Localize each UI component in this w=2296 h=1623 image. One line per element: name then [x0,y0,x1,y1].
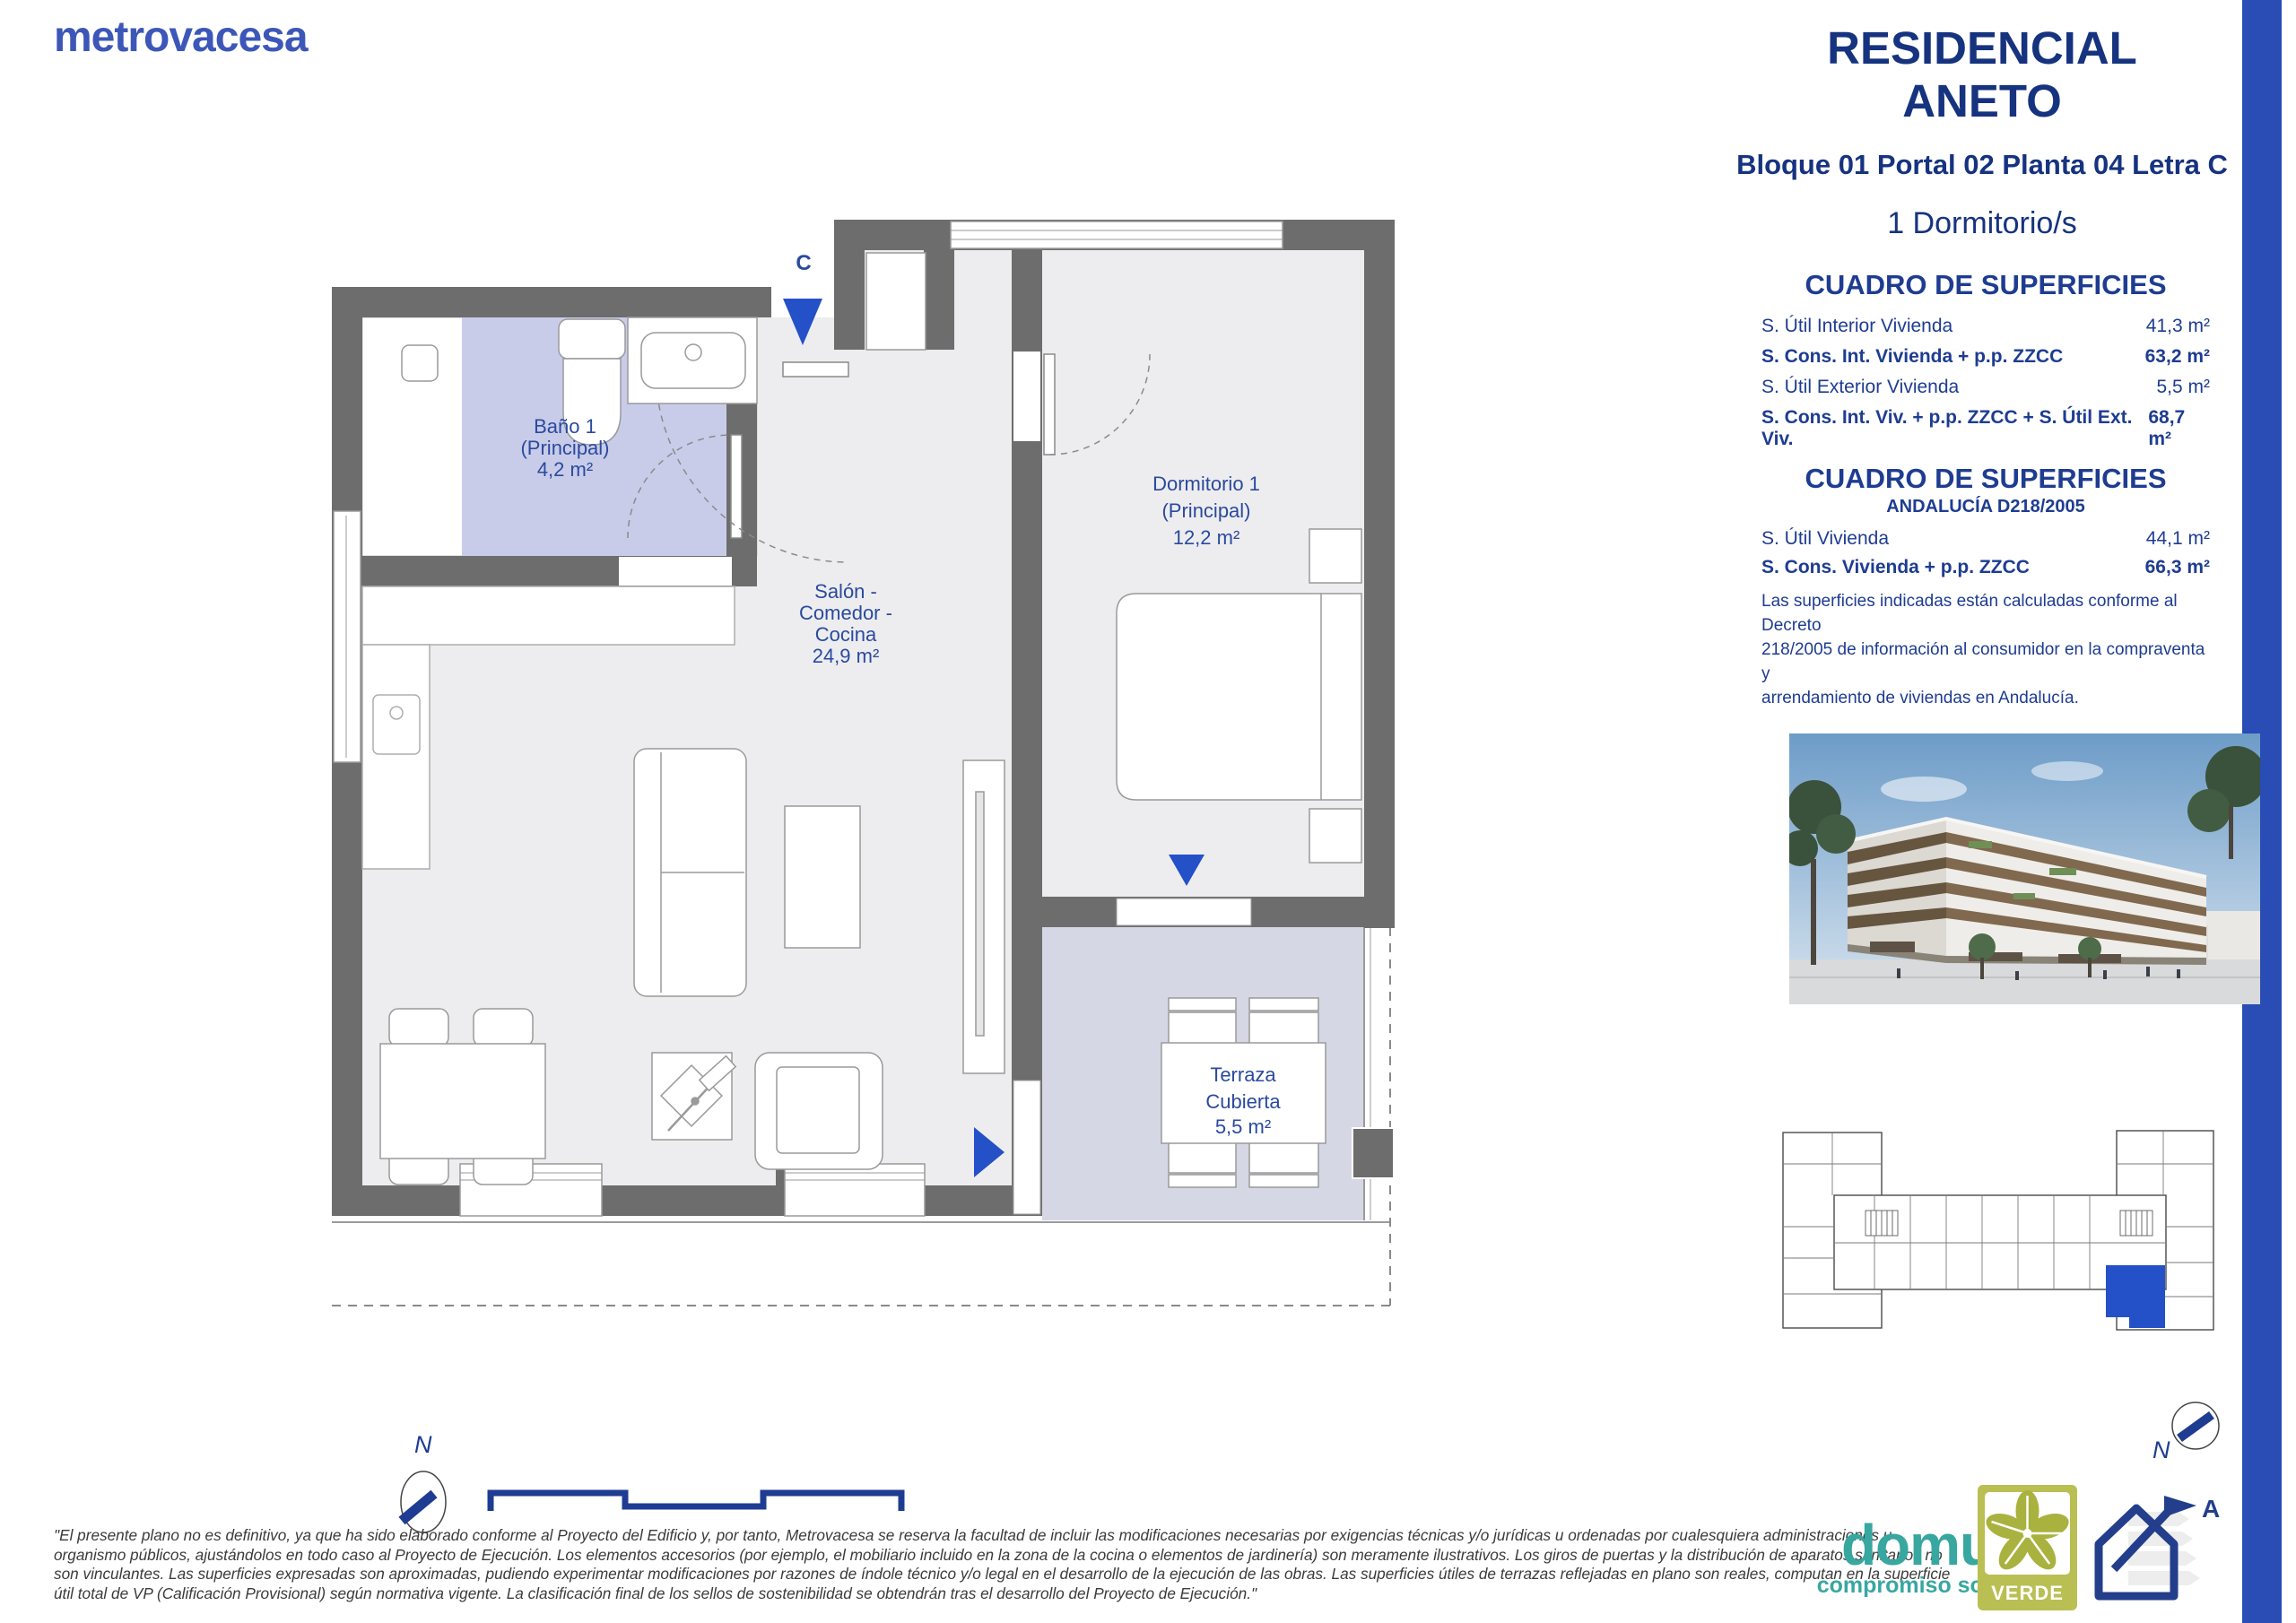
chair [1169,1141,1236,1173]
armchair [755,1053,883,1169]
chair-back [1249,998,1318,1011]
bed [1117,594,1361,800]
compass-needle [402,1494,434,1521]
bath-area: 4,2 m² [537,458,593,481]
chair [1169,1012,1236,1045]
cloud [1881,777,1967,802]
row-value: 63,2 m² [2145,346,2210,368]
tv-unit [963,760,1004,1073]
building-render-image [1789,733,2260,1004]
chair-back [1169,998,1236,1011]
sideboard [785,806,860,948]
compass-needle [2179,1415,2212,1438]
north-label: N [2152,1436,2170,1463]
kitchen-faucet [390,707,403,719]
dining-table [380,1044,545,1159]
bath-label: (Principal) [520,437,609,459]
row-label: S. Útil Exterior Vivienda [1761,377,1959,398]
living-label: Salón - [814,580,877,603]
keyplan [1776,1128,2220,1334]
domum-text-teal: domu [1841,1513,1994,1577]
verde-badge: VERDE [1978,1485,2077,1610]
scale-bar [491,1493,901,1511]
background-building [2204,911,2260,967]
sink-faucet [685,344,701,360]
chair [474,1009,533,1046]
row-label: S. Cons. Int. Viv. + p.p. ZZCC + S. Útil… [1761,407,2148,450]
energy-rating-icon: A [2085,1481,2233,1607]
cloud [2031,761,2103,781]
note-line: 218/2005 de información al consumidor en… [1761,638,2210,686]
decree-note: Las superficies indicadas están calculad… [1761,589,2210,710]
energy-chevron-bars [2128,1512,2200,1585]
page-title-line1: RESIDENCIAL [1695,22,2269,74]
living-area: 24,9 m² [813,645,880,667]
chair [1249,1012,1318,1045]
bath-label: Baño 1 [534,415,596,438]
bedroom-label: Dormitorio 1 [1152,473,1260,495]
table-row: S. Útil Interior Vivienda 41,3 m² [1761,316,2210,346]
chair [389,1009,448,1046]
ground [1789,959,2260,1004]
surfaces-table-andalucia: CUADRO DE SUPERFICIES ANDALUCÍA D218/200… [1761,463,2210,710]
bedroom-area: 12,2 m² [1173,526,1240,549]
keyplan-svg [1776,1128,2220,1334]
chair-back [1169,1175,1236,1187]
terrace-label: Terraza [1210,1063,1276,1086]
table-row: S. Útil Vivienda 44,1 m² [1761,528,2210,557]
hall-closet [866,253,926,350]
energy-class-label: A [2202,1495,2220,1523]
page-title-line2: ANETO [1695,74,2269,127]
table-row: S. Útil Exterior Vivienda 5,5 m² [1761,377,2210,407]
chair [1249,1141,1318,1173]
building-render-svg [1789,733,2260,1004]
planter [2013,893,2035,899]
entrance-letter: C [796,251,811,275]
row-value: 5,5 m² [2156,377,2210,398]
chair-back [1249,1175,1318,1187]
living-label: Comedor - [799,602,892,624]
bedroom-label: (Principal) [1161,499,1250,522]
terrace-pillar [1352,1128,1394,1178]
terrace-area: 5,5 m² [1215,1115,1271,1138]
row-value: 68,7 m² [2148,407,2210,450]
rug-and-lamp [652,1053,735,1140]
row-label: S. Cons. Int. Vivienda + p.p. ZZCC [1761,346,2063,368]
floorplan-drawing: C Baño 1 (Principal) 4,2 m² Salón - Come… [323,211,1444,1332]
row-value: 44,1 m² [2146,528,2210,550]
surfaces-table-title: CUADRO DE SUPERFICIES [1761,463,2210,495]
verde-badge-svg: VERDE [1978,1485,2077,1610]
header: RESIDENCIAL ANETO Bloque 01 Portal 02 Pl… [1695,22,2269,241]
table-row: S. Cons. Int. Vivienda + p.p. ZZCC 63,2 … [1761,346,2210,377]
planter [2049,868,2076,875]
table-row: S. Cons. Vivienda + p.p. ZZCC 66,3 m² [1761,557,2210,586]
metrovacesa-logo: metrovacesa [54,13,308,62]
kitchen-sink [373,695,420,754]
nightstand [1309,529,1361,583]
shower-drain [402,345,438,381]
surfaces-table-subtitle: ANDALUCÍA D218/2005 [1761,497,2210,517]
row-value: 66,3 m² [2145,557,2210,578]
nightstand [1309,809,1361,863]
keyplan-highlighted-unit [2106,1265,2165,1328]
bedroom-count: 1 Dormitorio/s [1695,206,2269,241]
note-line: Las superficies indicadas están calculad… [1761,589,2210,638]
note-line: arrendamiento de viviendas en Andalucía. [1761,686,2210,710]
energy-rating-svg: A [2085,1481,2233,1607]
surfaces-table-title: CUADRO DE SUPERFICIES [1761,269,2210,301]
row-label: S. Útil Interior Vivienda [1761,316,1952,337]
surfaces-table: CUADRO DE SUPERFICIES S. Útil Interior V… [1761,269,2210,438]
row-label: S. Útil Vivienda [1761,528,1889,550]
north-label: N [414,1431,432,1458]
storefront [1870,942,1915,952]
floorplan-svg: C Baño 1 (Principal) 4,2 m² Salón - Come… [323,211,1444,1332]
unit-location: Bloque 01 Portal 02 Planta 04 Letra C [1695,149,2269,181]
row-label: S. Cons. Vivienda + p.p. ZZCC [1761,557,2030,578]
living-label: Cocina [815,623,877,646]
terrace-label: Cubierta [1205,1090,1281,1113]
sofa [634,749,746,996]
table-row: S. Cons. Int. Viv. + p.p. ZZCC + S. Útil… [1761,407,2210,438]
row-value: 41,3 m² [2146,316,2210,337]
toilet-tank [559,319,625,359]
planter [1969,841,1992,848]
verde-label: VERDE [1991,1582,2064,1604]
